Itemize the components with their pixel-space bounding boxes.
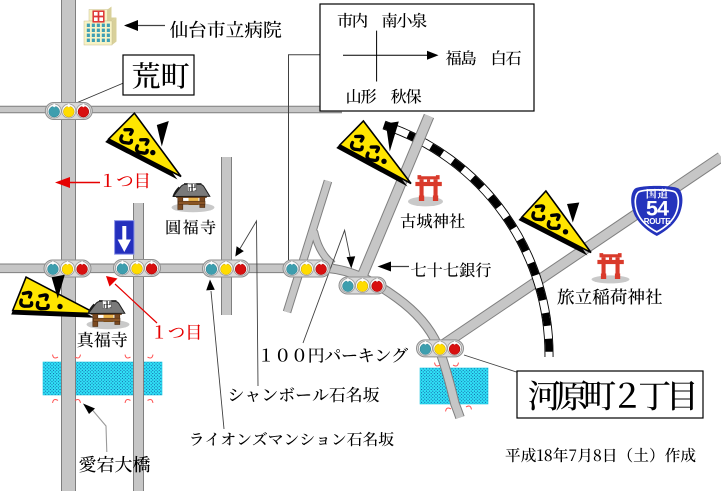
svg-text:ROUTE: ROUTE — [644, 217, 671, 226]
